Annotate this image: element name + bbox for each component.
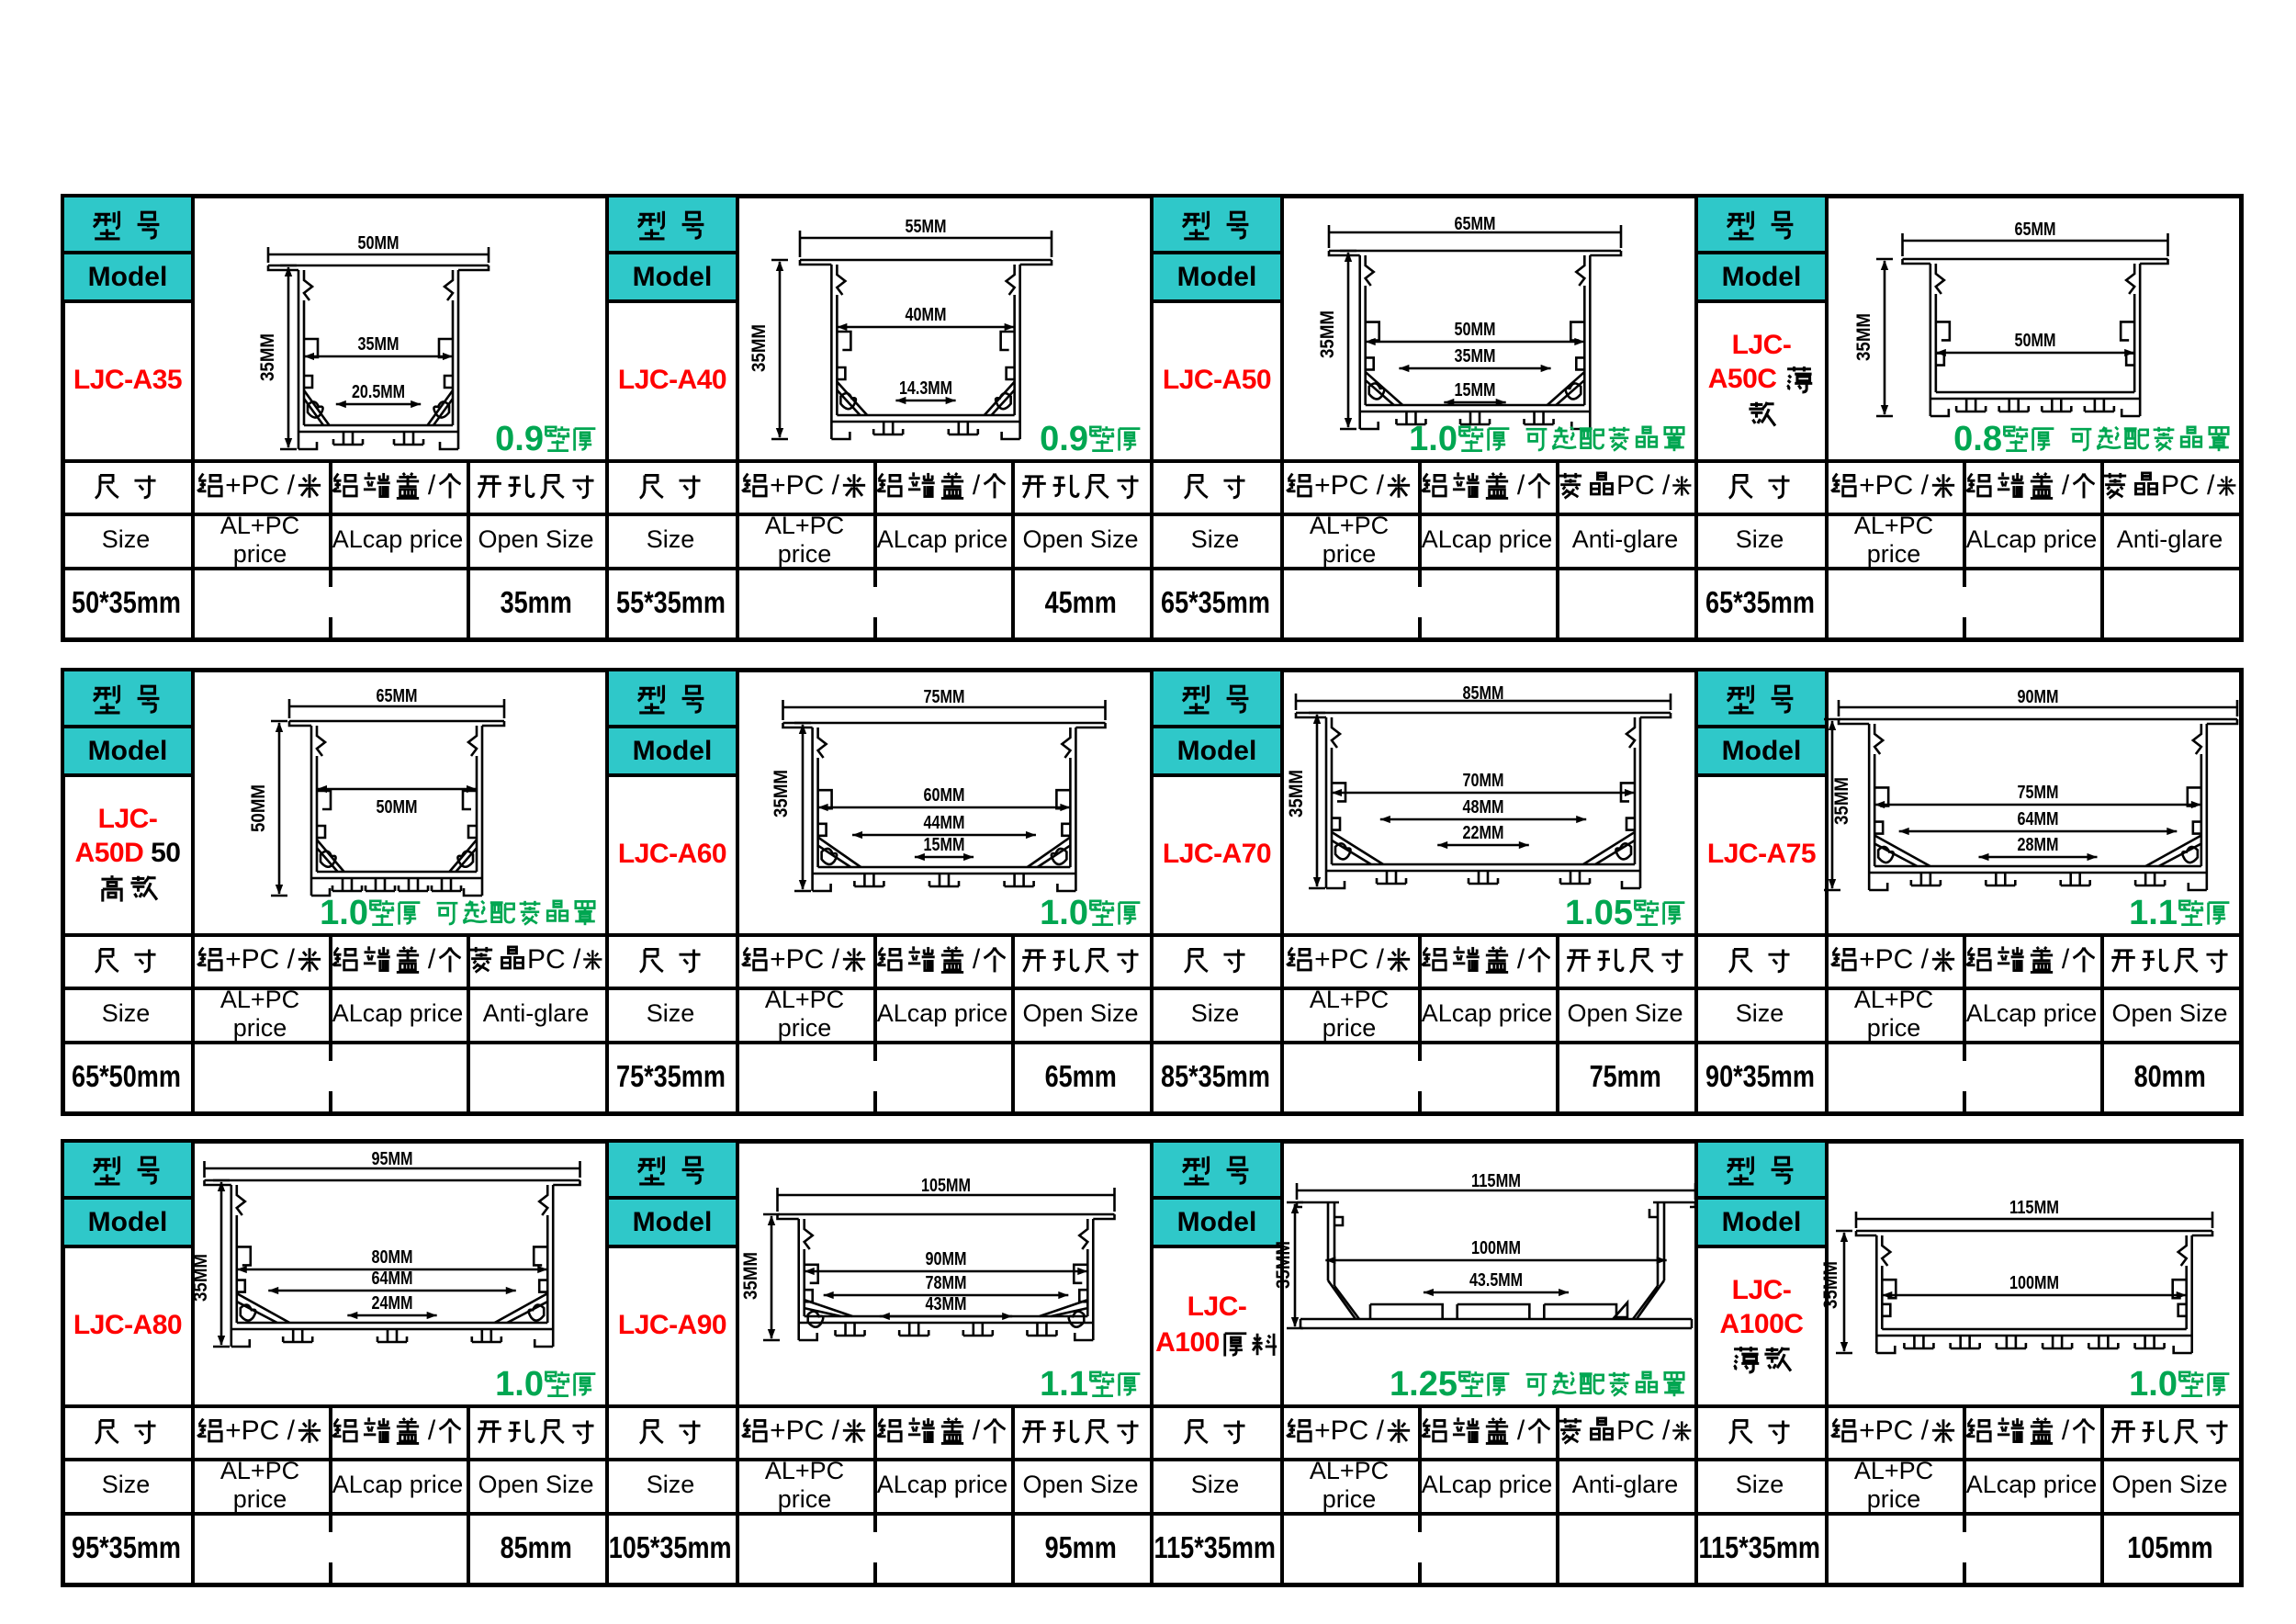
svg-text:35MM: 35MM xyxy=(1286,770,1307,818)
svg-text:43MM: 43MM xyxy=(926,1294,967,1314)
svg-text:28MM: 28MM xyxy=(2018,835,2059,855)
svg-text:90MM: 90MM xyxy=(2018,687,2059,707)
svg-text:50MM: 50MM xyxy=(2015,331,2056,351)
svg-text:70MM: 70MM xyxy=(1463,771,1504,791)
svg-text:15MM: 15MM xyxy=(1455,380,1496,400)
svg-text:100MM: 100MM xyxy=(2009,1273,2059,1293)
svg-text:105MM: 105MM xyxy=(921,1176,971,1196)
svg-text:35MM: 35MM xyxy=(1831,777,1852,825)
svg-text:22MM: 22MM xyxy=(1463,823,1504,843)
svg-text:15MM: 15MM xyxy=(924,835,965,855)
svg-text:35MM: 35MM xyxy=(1317,310,1338,358)
svg-text:50MM: 50MM xyxy=(1455,320,1496,340)
svg-text:44MM: 44MM xyxy=(924,813,965,833)
svg-text:35MM: 35MM xyxy=(190,1254,211,1302)
svg-text:115MM: 115MM xyxy=(2009,1198,2059,1218)
svg-text:115MM: 115MM xyxy=(1471,1171,1521,1191)
svg-text:65MM: 65MM xyxy=(1455,214,1496,234)
svg-text:35MM: 35MM xyxy=(1455,346,1496,367)
svg-text:35MM: 35MM xyxy=(748,324,770,372)
svg-text:80MM: 80MM xyxy=(372,1247,413,1268)
svg-text:35MM: 35MM xyxy=(1273,1241,1294,1289)
svg-text:78MM: 78MM xyxy=(926,1273,967,1293)
svg-text:43.5MM: 43.5MM xyxy=(1469,1270,1523,1291)
svg-text:50MM: 50MM xyxy=(377,797,418,818)
svg-text:35MM: 35MM xyxy=(740,1252,761,1300)
svg-text:14.3MM: 14.3MM xyxy=(899,378,952,399)
svg-text:75MM: 75MM xyxy=(924,687,965,707)
svg-text:35MM: 35MM xyxy=(257,333,278,381)
svg-text:35MM: 35MM xyxy=(358,334,400,355)
svg-text:65MM: 65MM xyxy=(2015,220,2056,240)
svg-text:60MM: 60MM xyxy=(924,785,965,806)
svg-text:65MM: 65MM xyxy=(377,686,418,706)
svg-text:100MM: 100MM xyxy=(1471,1238,1521,1258)
svg-text:75MM: 75MM xyxy=(2018,783,2059,803)
svg-text:35MM: 35MM xyxy=(1853,313,1874,361)
svg-text:35MM: 35MM xyxy=(1820,1261,1841,1309)
svg-text:64MM: 64MM xyxy=(2018,809,2059,829)
svg-text:50MM: 50MM xyxy=(248,784,269,832)
svg-text:35MM: 35MM xyxy=(771,770,792,818)
svg-text:64MM: 64MM xyxy=(372,1269,413,1289)
svg-text:48MM: 48MM xyxy=(1463,797,1504,818)
svg-text:85MM: 85MM xyxy=(1463,683,1504,704)
svg-text:20.5MM: 20.5MM xyxy=(352,382,405,402)
svg-text:40MM: 40MM xyxy=(906,305,947,325)
svg-text:50MM: 50MM xyxy=(358,233,400,254)
svg-text:95MM: 95MM xyxy=(372,1149,413,1169)
svg-text:90MM: 90MM xyxy=(926,1249,967,1269)
svg-text:55MM: 55MM xyxy=(906,217,947,237)
svg-text:24MM: 24MM xyxy=(372,1293,413,1314)
